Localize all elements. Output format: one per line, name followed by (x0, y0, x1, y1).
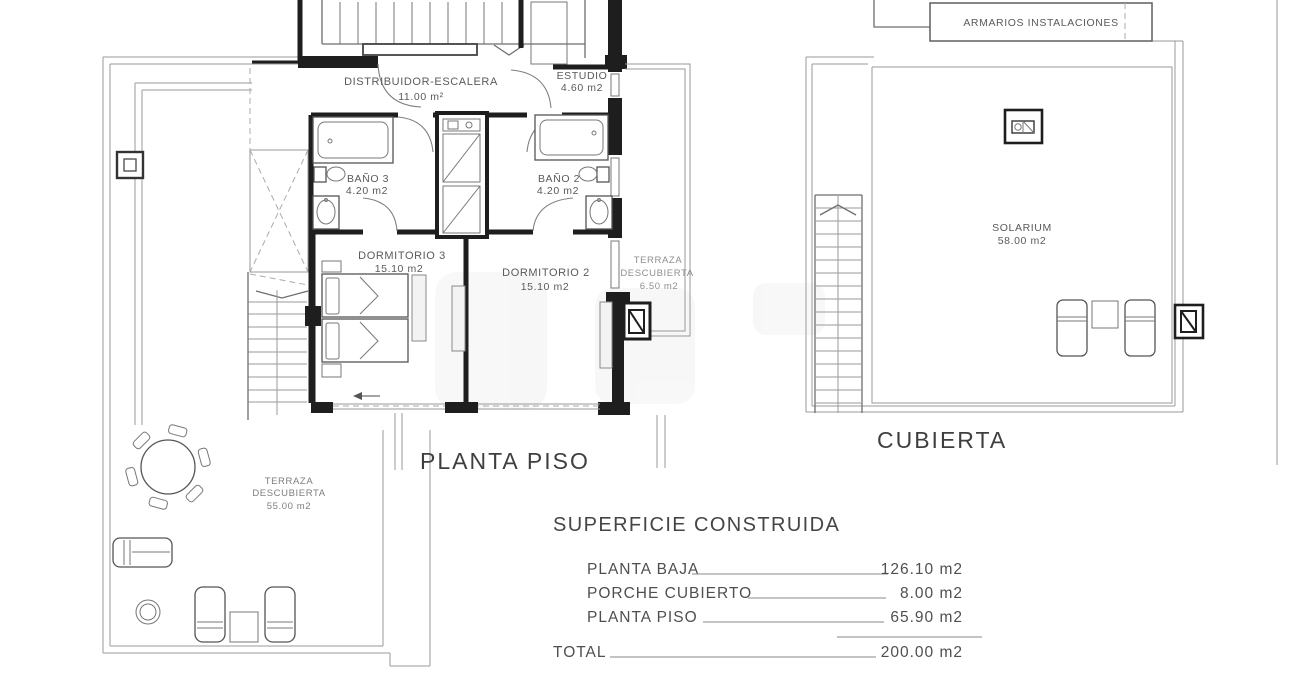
toilet-icon (597, 167, 609, 182)
summary-row-value: 8.00 m2 (900, 585, 963, 602)
room-area-terraza-principal: 55.00 m2 (267, 501, 311, 512)
side-table-icon (1092, 301, 1118, 328)
room-area-solarium: 58.00 m2 (998, 235, 1047, 247)
entry-arrow-head (353, 392, 362, 400)
room-label-estudio: ESTUDIO (557, 70, 608, 82)
bathtub-icon (535, 115, 608, 160)
desk-icon (531, 2, 567, 64)
armchair-icon (265, 587, 295, 642)
summary-row-label: PLANTA PISO (587, 609, 698, 626)
solarium-furniture (1057, 300, 1155, 356)
stair-handrail (363, 44, 477, 55)
room-label-dormitorio2: DORMITORIO 2 (502, 267, 590, 279)
bedroom3-beds (322, 261, 408, 377)
bed-icon (322, 274, 408, 317)
round-table-icon (141, 440, 195, 494)
floor-plan-sheet: DISTRIBUIDOR-ESCALERA 11.00 m² ESTUDIO 4… (0, 0, 1290, 698)
cubierta-plan: ARMARIOS INSTALACIONES (806, 0, 1277, 465)
room-label-bano2: BAÑO 2 (538, 172, 580, 185)
nightstand-icon (322, 261, 341, 272)
room-area-estudio: 4.60 m2 (561, 82, 603, 94)
surface-summary: SUPERFICIE CONSTRUIDA PLANTA BAJA 126.10… (553, 514, 982, 661)
room-label-terraza-principal-1: TERRAZA (265, 476, 314, 487)
summary-row-value: 65.90 m2 (890, 609, 963, 626)
lounger-icon (1125, 300, 1155, 356)
summary-row-label: PLANTA BAJA (587, 561, 699, 578)
radiator-icon (600, 302, 612, 368)
summary-total-value: 200.00 m2 (881, 644, 963, 661)
room-label-terraza-principal-2: DESCUBIERTA (252, 488, 325, 499)
room-label-terraza-lateral-2: DESCUBIERTA (620, 268, 693, 279)
summary-total-label: TOTAL (553, 644, 607, 661)
roof-chimney-icon (1175, 305, 1203, 338)
bathtub-icon (313, 117, 393, 163)
bed-icon (322, 319, 408, 362)
summary-row-value: 126.10 m2 (881, 561, 963, 578)
room-area-dormitorio2: 15.10 m2 (521, 281, 570, 293)
window-icon (611, 74, 619, 96)
window-icon (611, 241, 619, 288)
skylight-icon (1005, 110, 1042, 143)
room-area-distribuidor: 11.00 m² (398, 91, 443, 103)
cubierta-title: CUBIERTA (877, 427, 1007, 453)
room-label-bano3: BAÑO 3 (347, 172, 389, 185)
wardrobe-icon (452, 286, 465, 351)
coffee-table-icon (230, 612, 258, 642)
window-icon (611, 158, 619, 196)
room-label-distribuidor: DISTRIBUIDOR-ESCALERA (344, 76, 498, 88)
planta-piso-title: PLANTA PISO (420, 448, 590, 474)
room-label-dormitorio3: DORMITORIO 3 (358, 250, 446, 262)
room-label-armarios: ARMARIOS INSTALACIONES (963, 17, 1118, 29)
armchair-icon (195, 587, 225, 642)
shaft-closet (437, 113, 487, 237)
summary-title: SUPERFICIE CONSTRUIDA (553, 514, 840, 536)
bathroom2-fixtures (535, 115, 612, 229)
lounger-icon (1057, 300, 1087, 356)
wardrobe-icon (412, 275, 426, 341)
toilet-icon (314, 167, 326, 182)
room-label-solarium: SOLARIUM (992, 222, 1052, 234)
summary-row-label: PORCHE CUBIERTO (587, 585, 752, 602)
room-area-bano3: 4.20 m2 (346, 185, 388, 197)
armarios-box: ARMARIOS INSTALACIONES (930, 3, 1152, 41)
terrace-column (117, 152, 143, 178)
room-area-bano2: 4.20 m2 (537, 185, 579, 197)
upper-staircase (322, 0, 585, 58)
room-area-terraza-lateral: 6.50 m2 (640, 281, 679, 292)
stairwell (248, 68, 308, 420)
drawing-canvas: DISTRIBUIDOR-ESCALERA 11.00 m² ESTUDIO 4… (0, 0, 1290, 698)
room-label-terraza-lateral-1: TERRAZA (634, 255, 683, 266)
nightstand-icon (322, 364, 341, 377)
terrace-furniture (113, 424, 295, 642)
room-area-dormitorio3: 15.10 m2 (375, 263, 424, 275)
